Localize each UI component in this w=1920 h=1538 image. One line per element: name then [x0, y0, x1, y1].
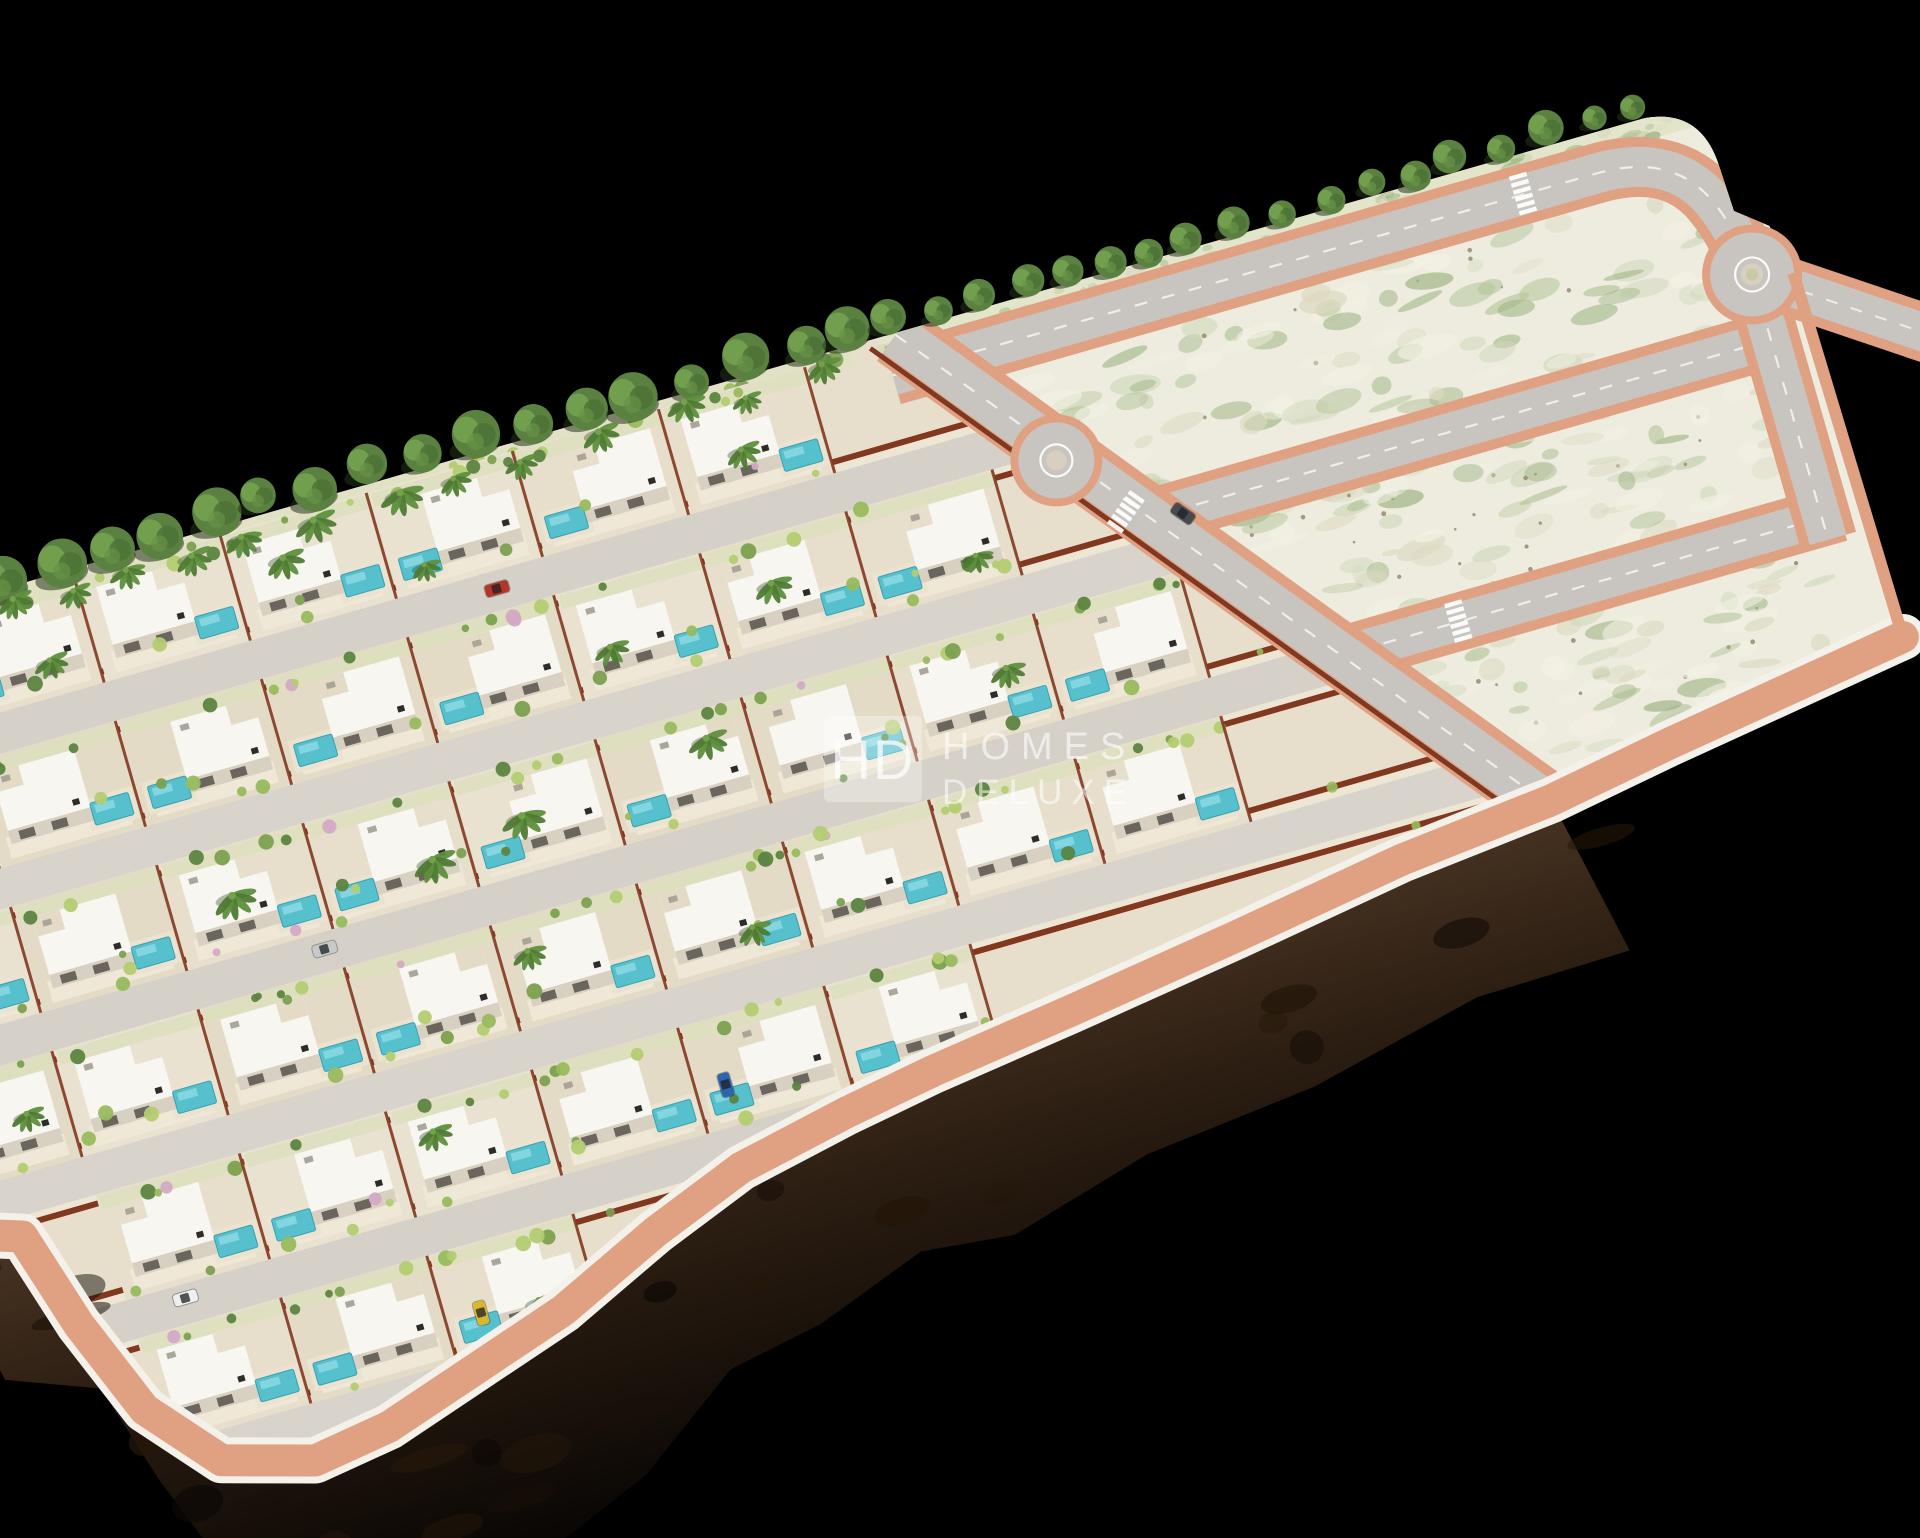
development-aerial-render: HD HOMES DELUXE [0, 0, 1920, 1538]
render-canvas [0, 0, 1920, 1538]
scene-svg [0, 0, 1920, 1538]
